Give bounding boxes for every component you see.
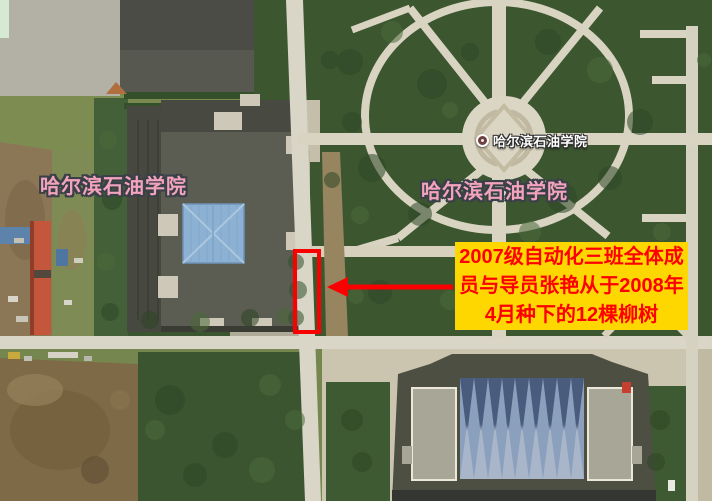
poi-marker: 哈尔滨石油学院: [476, 131, 588, 150]
annotation-line-2: 员与导员张艳从于2008年: [455, 272, 688, 301]
poi-dot-icon: [476, 134, 489, 147]
poi-label: 哈尔滨石油学院: [493, 131, 588, 150]
satellite-map: 哈尔滨石油学院 哈尔滨石油学院 哈尔滨石油学院 2007级自动化三班全体成 员与…: [0, 0, 712, 501]
annotation-line-1: 2007级自动化三班全体成: [455, 243, 688, 272]
annotation-note: 2007级自动化三班全体成 员与导员张艳从于2008年 4月种下的12棵柳树: [455, 242, 688, 330]
campus-label-left: 哈尔滨石油学院: [40, 170, 187, 199]
auditorium-building: [392, 354, 675, 501]
parking-area: [0, 0, 254, 109]
annotation-line-3: 4月种下的12棵柳树: [455, 301, 688, 330]
highlight-rectangle: [293, 249, 321, 334]
campus-label-center: 哈尔滨石油学院: [421, 175, 568, 204]
